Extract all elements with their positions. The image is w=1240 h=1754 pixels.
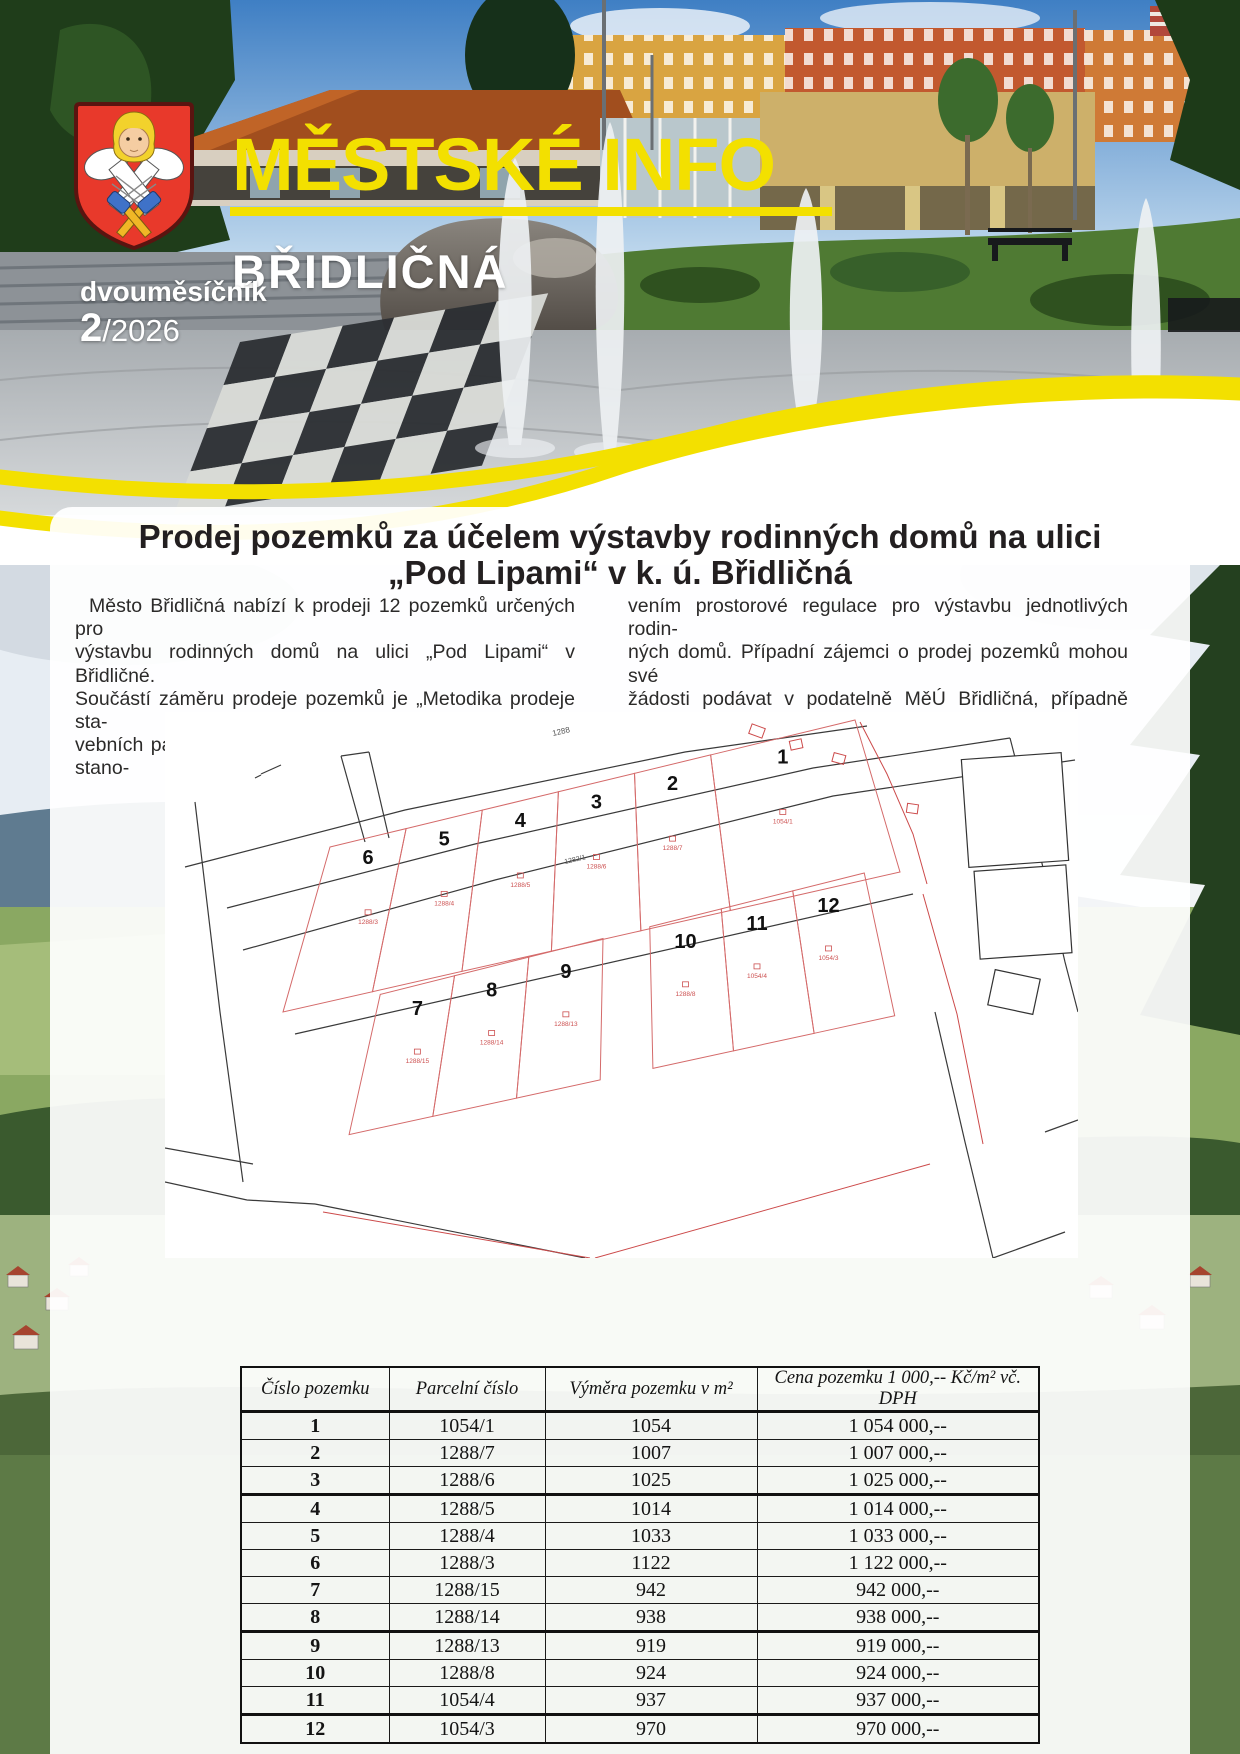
table-cell: 1007 [545, 1440, 757, 1467]
table-cell: 1 [241, 1412, 389, 1440]
plot-parcel-label: 1288/4 [434, 900, 454, 907]
table-row: 101288/8924924 000,-- [241, 1660, 1039, 1687]
table-cell: 924 [545, 1660, 757, 1687]
table-cell: 1288/14 [389, 1604, 545, 1632]
issue-number: 2 [80, 306, 102, 350]
masthead-title: MĚSTSKÉ INFO [232, 122, 775, 207]
plot-parcel-label: 1288/8 [676, 991, 696, 998]
table-header-cell: Parcelní číslo [389, 1367, 545, 1412]
table-cell: 970 000,-- [757, 1715, 1039, 1744]
body-text-line: Město Břidličná nabízí k prodeji 12 poze… [75, 595, 575, 641]
plot-boundary-12 [793, 873, 895, 1033]
table-row: 81288/14938938 000,-- [241, 1604, 1039, 1632]
table-cell: 942 000,-- [757, 1577, 1039, 1604]
table-row: 61288/311221 122 000,-- [241, 1550, 1039, 1577]
plot-marker [489, 1030, 495, 1035]
plot-marker [780, 809, 786, 814]
table-cell: 1 122 000,-- [757, 1550, 1039, 1577]
table-cell: 1288/13 [389, 1632, 545, 1660]
table-cell: 1 025 000,-- [757, 1467, 1039, 1495]
table-cell: 9 [241, 1632, 389, 1660]
plot-parcel-label: 1288/14 [480, 1039, 504, 1046]
table-row: 31288/610251 025 000,-- [241, 1467, 1039, 1495]
table-row: 121054/3970970 000,-- [241, 1715, 1039, 1744]
plot-number-4: 4 [515, 810, 527, 832]
table-cell: 919 [545, 1632, 757, 1660]
table-cell: 1014 [545, 1495, 757, 1523]
table-cell: 1 054 000,-- [757, 1412, 1039, 1440]
table-cell: 1288/3 [389, 1550, 545, 1577]
table-row: 91288/13919919 000,-- [241, 1632, 1039, 1660]
cadastral-map: 1288 1282/1 61288/351288/441288/531288/6… [165, 712, 1078, 1258]
table-cell: 1054 [545, 1412, 757, 1440]
plot-number-7: 7 [412, 998, 423, 1020]
table-cell: 1288/7 [389, 1440, 545, 1467]
table-header-row: Číslo pozemkuParcelní čísloVýměra pozemk… [241, 1367, 1039, 1412]
table-body: 11054/110541 054 000,--21288/710071 007 … [241, 1412, 1039, 1744]
body-text-line: výstavbu rodinných domů na ulici „Pod Li… [75, 641, 575, 687]
plot-marker [826, 946, 832, 951]
table-cell: 938 [545, 1604, 757, 1632]
table-cell: 1025 [545, 1467, 757, 1495]
plot-boundary-2 [635, 755, 731, 931]
plot-boundary-8 [433, 957, 529, 1116]
angel-head [113, 112, 155, 162]
plot-parcel-label: 1054/1 [773, 818, 793, 825]
table-cell: 8 [241, 1604, 389, 1632]
plot-number-11: 11 [746, 913, 767, 935]
table-header-cell: Cena pozemku 1 000,-- Kč/m² vč. DPH [757, 1367, 1039, 1412]
table-cell: 937 [545, 1687, 757, 1715]
table-cell: 1288/8 [389, 1660, 545, 1687]
table-cell: 942 [545, 1577, 757, 1604]
plot-number-6: 6 [363, 847, 374, 869]
map-buildings [961, 753, 1072, 1015]
table-cell: 2 [241, 1440, 389, 1467]
table-cell: 1054/4 [389, 1687, 545, 1715]
plot-number-12: 12 [817, 895, 839, 917]
plot-number-5: 5 [439, 828, 450, 850]
table-cell: 919 000,-- [757, 1632, 1039, 1660]
plot-number-10: 10 [674, 931, 696, 953]
table-cell: 1288/6 [389, 1467, 545, 1495]
table-cell: 1 007 000,-- [757, 1440, 1039, 1467]
table-header-cell: Číslo pozemku [241, 1367, 389, 1412]
table-row: 71288/15942942 000,-- [241, 1577, 1039, 1604]
plot-number-1: 1 [777, 746, 788, 768]
map-roads [165, 726, 1078, 1258]
table-cell: 970 [545, 1715, 757, 1744]
table-cell: 6 [241, 1550, 389, 1577]
plot-parcel-label: 1054/4 [747, 973, 767, 980]
table-cell: 1288/5 [389, 1495, 545, 1523]
table-cell: 1288/4 [389, 1523, 545, 1550]
plot-marker [414, 1049, 420, 1054]
issue-year: /2026 [102, 313, 180, 348]
plot-boundary-11 [721, 891, 814, 1051]
plot-marker [563, 1012, 569, 1017]
table-cell: 1122 [545, 1550, 757, 1577]
plot-marker [683, 982, 689, 987]
plot-parcel-label: 1288/15 [406, 1058, 430, 1065]
plot-parcel-label: 1054/3 [819, 955, 839, 962]
map-road-labels: 1288 1282/1 [551, 725, 586, 866]
table-row: 111054/4937937 000,-- [241, 1687, 1039, 1715]
plot-parcel-label: 1288/13 [554, 1021, 578, 1028]
table-cell: 1054/3 [389, 1715, 545, 1744]
table-row: 11054/110541 054 000,-- [241, 1412, 1039, 1440]
table-cell: 5 [241, 1523, 389, 1550]
body-text-line: ných domů. Případní zájemci o prodej poz… [628, 641, 1128, 687]
table-cell: 1288/15 [389, 1577, 545, 1604]
article-title-line2: „Pod Lipami“ v k. ú. Břidličná [50, 555, 1190, 591]
masthead-issue: 2/2026 [80, 306, 180, 351]
table-cell: 7 [241, 1577, 389, 1604]
masthead-periodicity: dvouměsíčník [80, 276, 267, 308]
table-cell: 937 000,-- [757, 1687, 1039, 1715]
table-cell: 11 [241, 1687, 389, 1715]
plot-marker [365, 910, 371, 915]
masthead-town: BŘIDLIČNÁ [232, 244, 508, 299]
plot-marker [754, 964, 760, 969]
young-tree [938, 58, 998, 142]
table-cell: 1 033 000,-- [757, 1523, 1039, 1550]
plot-number-2: 2 [667, 773, 678, 795]
table-cell: 1 014 000,-- [757, 1495, 1039, 1523]
svg-text:1282/1: 1282/1 [564, 854, 587, 866]
table-cell: 924 000,-- [757, 1660, 1039, 1687]
plots-price-table: Číslo pozemkuParcelní čísloVýměra pozemk… [240, 1366, 1040, 1744]
table-cell: 12 [241, 1715, 389, 1744]
table-cell: 1054/1 [389, 1412, 545, 1440]
plot-number-9: 9 [560, 961, 571, 983]
newsletter-page: MĚSTSKÉ INFO BŘIDLIČNÁ dvouměsíčník 2/20… [0, 0, 1240, 1754]
article-title-line1: Prodej pozemků za účelem výstavby rodinn… [50, 519, 1190, 555]
map-utility-lines [323, 722, 983, 1258]
table-cell: 4 [241, 1495, 389, 1523]
body-text-line: vením prostorové regulace pro výstavbu j… [628, 595, 1128, 641]
table-cell: 3 [241, 1467, 389, 1495]
table-cell: 938 000,-- [757, 1604, 1039, 1632]
table-cell: 10 [241, 1660, 389, 1687]
plot-boundary-1 [711, 720, 900, 911]
plot-parcel-label: 1288/5 [510, 882, 530, 889]
table-header-cell: Výměra pozemku v m² [545, 1367, 757, 1412]
svg-text:1288: 1288 [551, 725, 571, 738]
table-row: 21288/710071 007 000,-- [241, 1440, 1039, 1467]
plot-boundary-7 [349, 976, 454, 1135]
table-row: 51288/410331 033 000,-- [241, 1523, 1039, 1550]
coat-of-arms [70, 100, 198, 252]
plot-parcel-label: 1288/6 [586, 864, 606, 871]
masthead-underline [230, 207, 832, 216]
plot-parcel-label: 1288/3 [358, 919, 378, 926]
plot-number-8: 8 [486, 979, 497, 1001]
table-row: 41288/510141 014 000,-- [241, 1495, 1039, 1523]
plot-parcel-label: 1288/7 [663, 845, 683, 852]
content-panel: Prodej pozemků za účelem výstavby rodinn… [50, 507, 1190, 1754]
table-cell: 1033 [545, 1523, 757, 1550]
plot-number-3: 3 [591, 792, 602, 814]
